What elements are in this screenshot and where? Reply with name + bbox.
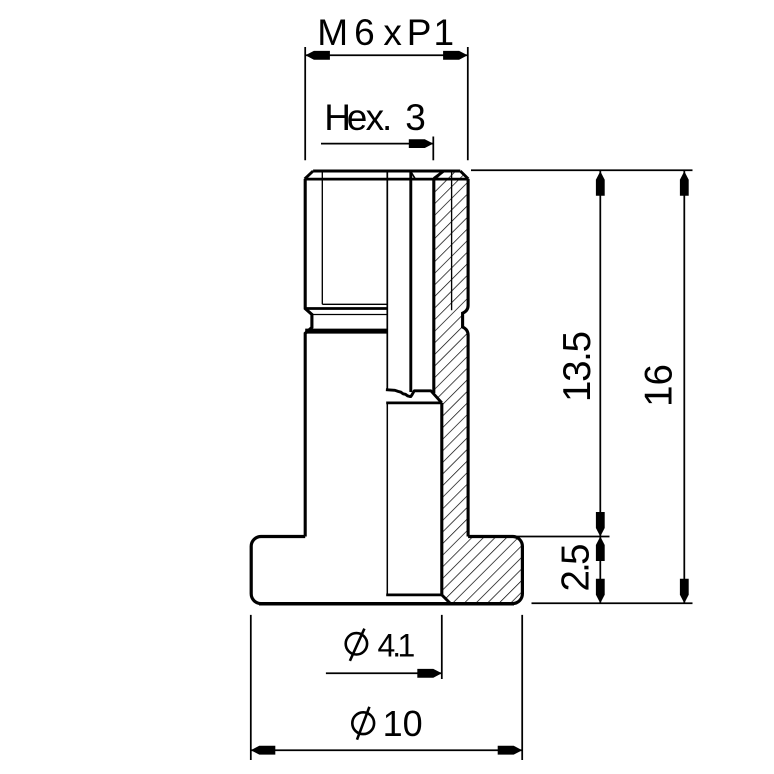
svg-text:M6xP1: M6xP1 bbox=[317, 12, 454, 53]
svg-text:13.5: 13.5 bbox=[556, 331, 599, 402]
svg-text:Hex.3: Hex.3 bbox=[324, 97, 426, 138]
svg-text:10: 10 bbox=[383, 703, 423, 744]
svg-text:16: 16 bbox=[638, 364, 681, 407]
svg-text:4.1: 4.1 bbox=[378, 627, 416, 663]
svg-text:2.5: 2.5 bbox=[555, 544, 598, 592]
